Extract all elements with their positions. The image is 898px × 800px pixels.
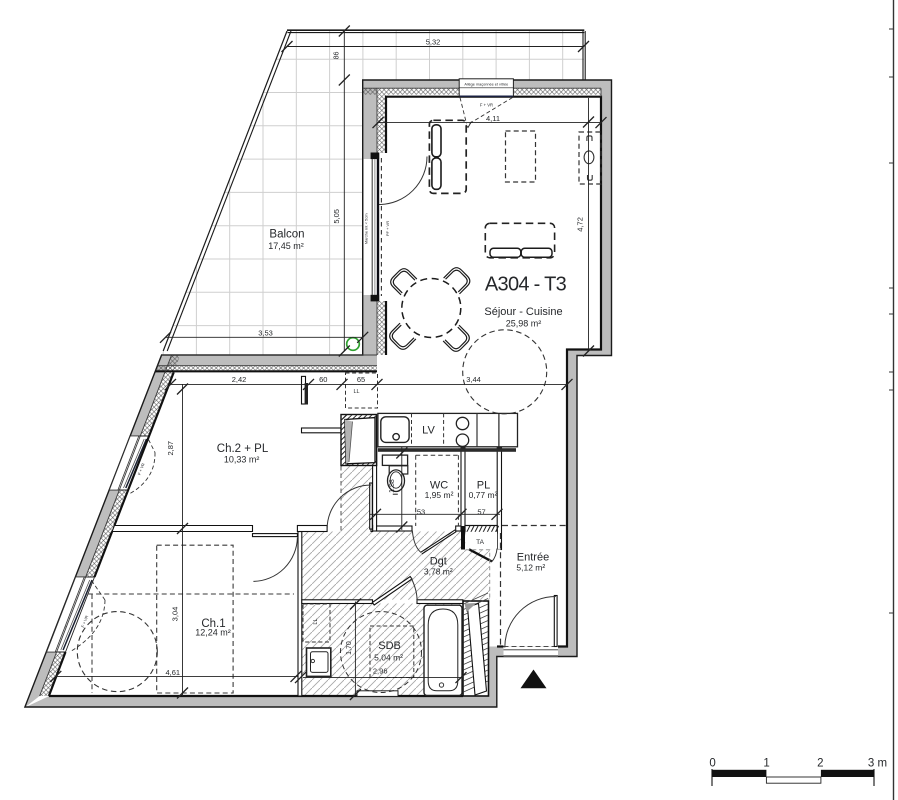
svg-text:5,32: 5,32 (426, 38, 441, 47)
svg-text:A304 - T3: A304 - T3 (485, 274, 567, 296)
svg-text:LV: LV (422, 425, 435, 437)
svg-text:4,72: 4,72 (576, 217, 585, 232)
svg-text:65: 65 (357, 375, 365, 384)
svg-text:Séjour - Cuisine: Séjour - Cuisine (484, 306, 562, 318)
svg-text:PF + VR: PF + VR (385, 221, 390, 236)
svg-text:F + VR: F + VR (480, 103, 493, 108)
svg-text:2,87: 2,87 (166, 441, 175, 456)
svg-text:3,53: 3,53 (258, 328, 273, 337)
svg-text:1,95 m²: 1,95 m² (425, 490, 454, 500)
svg-text:3,44: 3,44 (466, 375, 481, 384)
svg-text:2,42: 2,42 (232, 375, 247, 384)
svg-text:5,04 m²: 5,04 m² (374, 653, 403, 663)
svg-text:Allège maçonnée et vitrée: Allège maçonnée et vitrée (464, 82, 508, 86)
svg-text:1,88: 1,88 (389, 479, 396, 493)
svg-text:3,78 m²: 3,78 m² (424, 567, 453, 577)
svg-text:57: 57 (477, 507, 485, 516)
svg-text:12,24 m²: 12,24 m² (195, 628, 231, 638)
svg-text:10,33 m²: 10,33 m² (224, 455, 260, 465)
svg-text:5,12 m²: 5,12 m² (516, 563, 545, 573)
svg-text:LL: LL (353, 389, 359, 395)
svg-text:SDB: SDB (378, 640, 401, 652)
svg-text:TA: TA (476, 539, 484, 546)
svg-text:25,98 m²: 25,98 m² (506, 319, 542, 329)
svg-text:Ch.2 + PL: Ch.2 + PL (217, 443, 269, 455)
svg-text:3 m: 3 m (868, 758, 887, 770)
svg-text:0,77 m²: 0,77 m² (469, 490, 498, 500)
svg-text:17,45 m²: 17,45 m² (268, 241, 304, 251)
svg-text:LL: LL (313, 618, 319, 624)
svg-text:0: 0 (709, 758, 715, 770)
svg-text:86: 86 (334, 52, 341, 60)
svg-text:Balcon: Balcon (269, 229, 304, 241)
svg-text:1: 1 (763, 758, 769, 770)
svg-text:60: 60 (319, 375, 327, 384)
svg-text:Marche int < 5cm: Marche int < 5cm (363, 213, 368, 244)
svg-text:2: 2 (817, 758, 823, 770)
svg-text:,53: ,53 (415, 508, 425, 517)
svg-text:4,11: 4,11 (486, 114, 500, 123)
svg-text:3,04: 3,04 (170, 607, 179, 622)
svg-text:4,61: 4,61 (165, 668, 180, 677)
svg-text:2,96: 2,96 (373, 667, 388, 676)
svg-text:5,05: 5,05 (332, 209, 341, 224)
svg-text:1,70: 1,70 (346, 641, 353, 655)
